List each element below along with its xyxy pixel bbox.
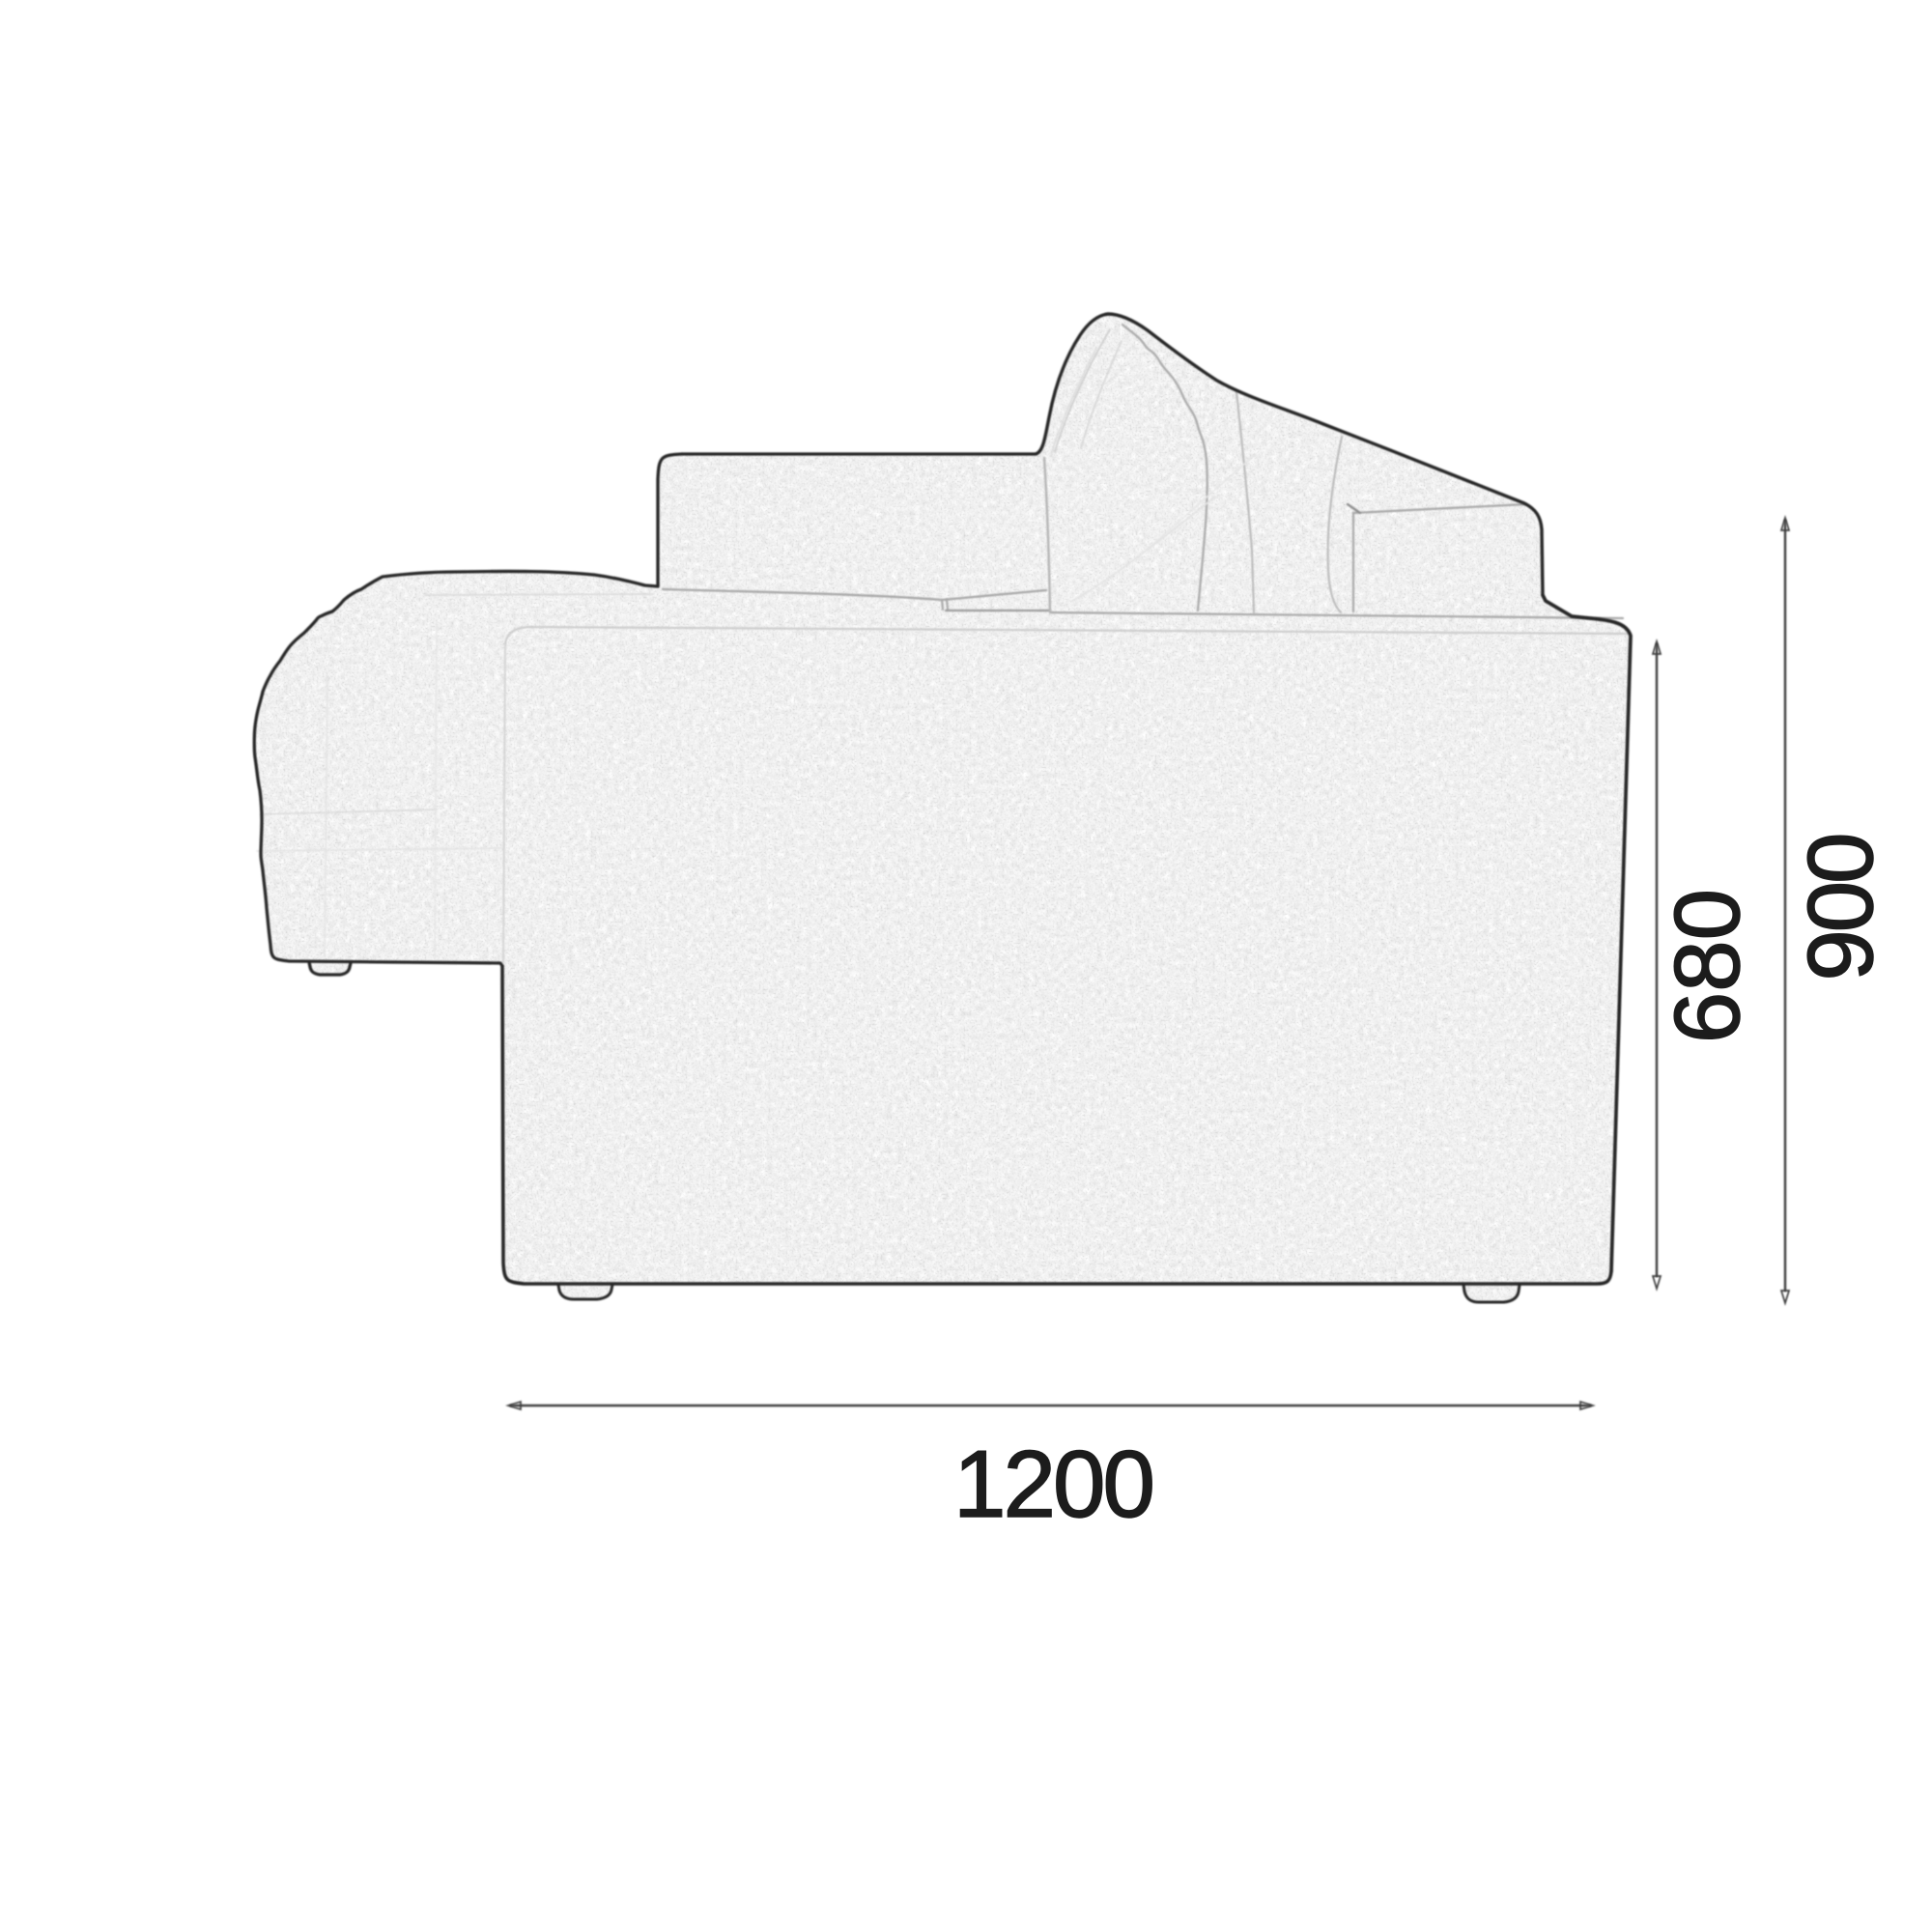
svg-text:680: 680 xyxy=(1656,889,1759,1043)
svg-text:900: 900 xyxy=(1789,835,1892,980)
svg-text:1200: 1200 xyxy=(953,1431,1152,1537)
